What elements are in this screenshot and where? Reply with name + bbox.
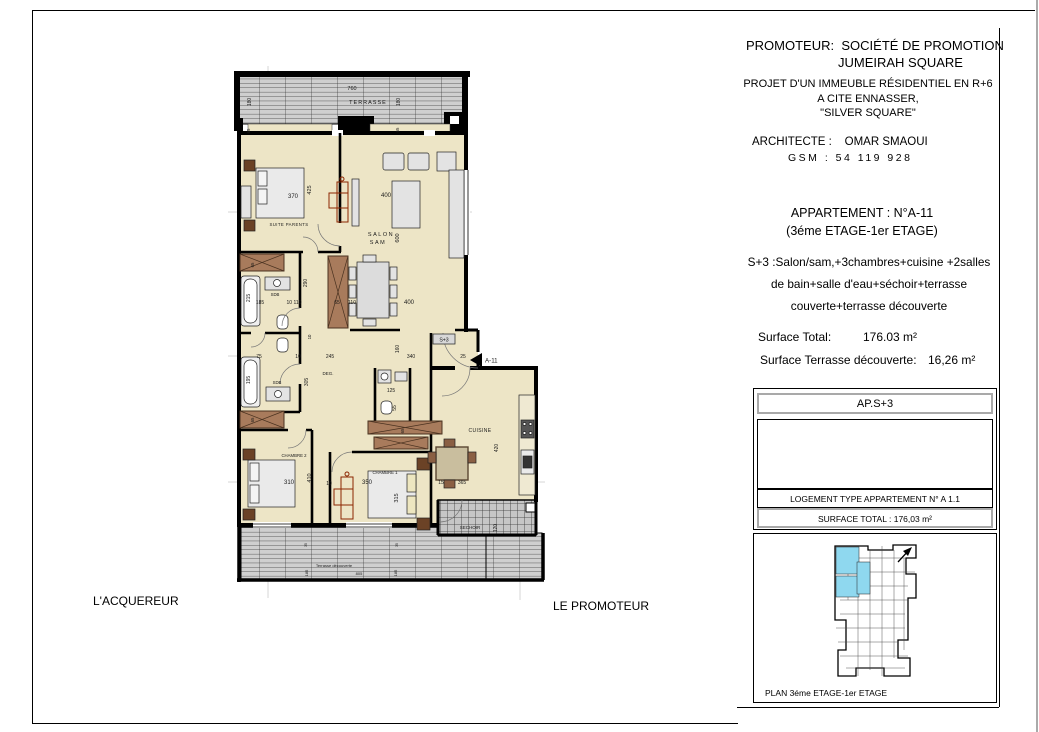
plan-label: 10 xyxy=(295,354,301,360)
plan-label: 65 xyxy=(334,300,340,306)
plan-label: 370 xyxy=(288,194,299,200)
plan-label: 65 xyxy=(250,262,255,267)
logement-label: LOGEMENT TYPE APPARTEMENT N° A 1.1 xyxy=(757,494,993,504)
promoteur-label: PROMOTEUR: xyxy=(746,38,834,53)
plan-label: 245 xyxy=(326,354,335,360)
plan-label: SUITE PARENTS xyxy=(269,222,308,227)
page-border-top xyxy=(32,10,1035,11)
architecte-label: ARCHITECTE : xyxy=(752,136,832,148)
plan-label: 310 xyxy=(284,480,295,486)
plan-label: 400 xyxy=(381,193,392,199)
plan-label: 290 xyxy=(303,279,309,288)
plan-label: 10 xyxy=(307,334,312,339)
plan-label: 35 xyxy=(304,543,308,547)
surface-row-label: SURFACE TOTAL : 176,03 m² xyxy=(757,514,993,524)
cartouche-empty-box xyxy=(757,419,993,489)
plan-label: Terrasse découverte xyxy=(316,563,353,568)
project-line2: A CITE ENNASSER, xyxy=(737,93,999,105)
plan-label: 185 xyxy=(393,569,398,576)
floor-plan: S+3 A-11 760TERRASSE1801806565370425SUIT… xyxy=(225,60,565,600)
page-border-bottom xyxy=(32,723,738,724)
plan-label: 185 xyxy=(256,300,265,306)
apartment-desc2: de bain+salle d'eau+séchoir+terrasse xyxy=(733,277,1005,291)
plan-label: 75 xyxy=(256,354,262,360)
plan-label: 425 xyxy=(307,185,313,194)
plan-label: 410 xyxy=(307,473,313,482)
plan-label: 35 xyxy=(395,543,399,547)
plan-label: 340 xyxy=(407,354,416,360)
plan-label: 110 xyxy=(348,300,356,306)
page-border-left xyxy=(32,10,33,724)
page-edge-right xyxy=(1036,0,1038,732)
plan-label: TERRASSE xyxy=(349,100,387,106)
plan-label: SALON xyxy=(368,232,394,238)
surface-total-value: 176.03 m² xyxy=(863,330,917,344)
plan-label: SDB xyxy=(273,380,282,385)
surface-terrasse-value: 16,26 m² xyxy=(928,353,975,367)
apartment-number: APPARTEMENT : N°A-11 xyxy=(737,206,987,220)
plan-label: 10 110 xyxy=(287,300,302,306)
unit-type-tag: S+3 xyxy=(439,338,448,344)
panel-border-bottom xyxy=(737,707,999,708)
plan-label: 180 xyxy=(396,98,402,107)
plan-label: 160 xyxy=(395,345,401,354)
plan-label: 805 xyxy=(356,571,363,576)
promoteur-name2: JUMEIRAH SQUARE xyxy=(838,55,963,70)
plan-label: 305 xyxy=(304,378,310,387)
plan-label: 350 xyxy=(362,480,373,486)
entrance-label: A-11 xyxy=(485,358,498,365)
promoteur-name: SOCIÉTÉ DE PROMOTION xyxy=(841,38,1004,53)
plan-label: 120 xyxy=(493,524,499,533)
plan-label: 400 xyxy=(404,300,415,306)
surface-terrasse-label: Surface Terrasse découverte: xyxy=(760,353,917,367)
plan-label: 365 xyxy=(458,480,467,486)
key-plan-caption: PLAN 3éme ETAGE-1er ETAGE xyxy=(765,688,887,698)
signature-promoteur: LE PROMOTEUR xyxy=(553,599,649,613)
plan-label: 55 xyxy=(392,405,398,411)
plan-label: CHAMBRE 2 xyxy=(281,453,307,458)
plan-label: 420 xyxy=(494,444,500,453)
plan-label: 600 xyxy=(395,233,401,242)
plan-label: 185 xyxy=(304,569,309,576)
gsm-line: GSM : 54 119 928 xyxy=(788,152,912,164)
plan-label: 760 xyxy=(347,86,356,92)
plan-label: 65 xyxy=(246,128,251,133)
plan-label: 25 xyxy=(460,354,466,360)
apartment-floor-range: (3éme ETAGE-1er ETAGE) xyxy=(737,224,987,238)
surface-total-label: Surface Total: xyxy=(758,330,831,344)
plan-label: CUISINE xyxy=(468,428,491,434)
plan-label: CHAMBRE 1 xyxy=(372,470,398,475)
architecte-name: OMAR SMAOUI xyxy=(845,136,928,148)
plan-label: 195 xyxy=(246,376,252,385)
plan-label: 10 xyxy=(326,481,332,487)
plan-label: 65 xyxy=(250,417,255,422)
document-page: S+3 A-11 760TERRASSE1801806565370425SUIT… xyxy=(0,0,1039,732)
plan-label: DEG. xyxy=(322,371,333,376)
plan-label: 65 xyxy=(400,428,405,433)
signature-acquereur: L'ACQUEREUR xyxy=(93,594,179,608)
plan-label: 65 xyxy=(395,127,400,132)
apartment-desc1: S+3 :Salon/sam,+3chambres+cuisine +2sall… xyxy=(733,255,1005,269)
plan-label: 215 xyxy=(246,294,252,303)
plan-label: SECHOIR xyxy=(460,525,481,530)
plan-label: SDB xyxy=(271,292,280,297)
apartment-desc3: couverte+terrasse découverte xyxy=(733,299,1005,313)
project-line3: "SILVER SQUARE" xyxy=(737,107,999,119)
plan-label: 125 xyxy=(387,388,396,394)
unit-type-label: AP.S+3 xyxy=(757,398,993,410)
plan-label: 180 xyxy=(247,98,253,107)
sechoir-area xyxy=(438,500,536,535)
project-line1: PROJET D'UN IMMEUBLE RÉSIDENTIEL EN R+6 xyxy=(737,78,999,90)
key-plan xyxy=(753,533,997,703)
plan-label: 315 xyxy=(394,493,400,502)
panel-border-right xyxy=(999,28,1000,707)
plan-label: 15 xyxy=(438,480,444,486)
plan-label: SAM xyxy=(370,240,386,246)
